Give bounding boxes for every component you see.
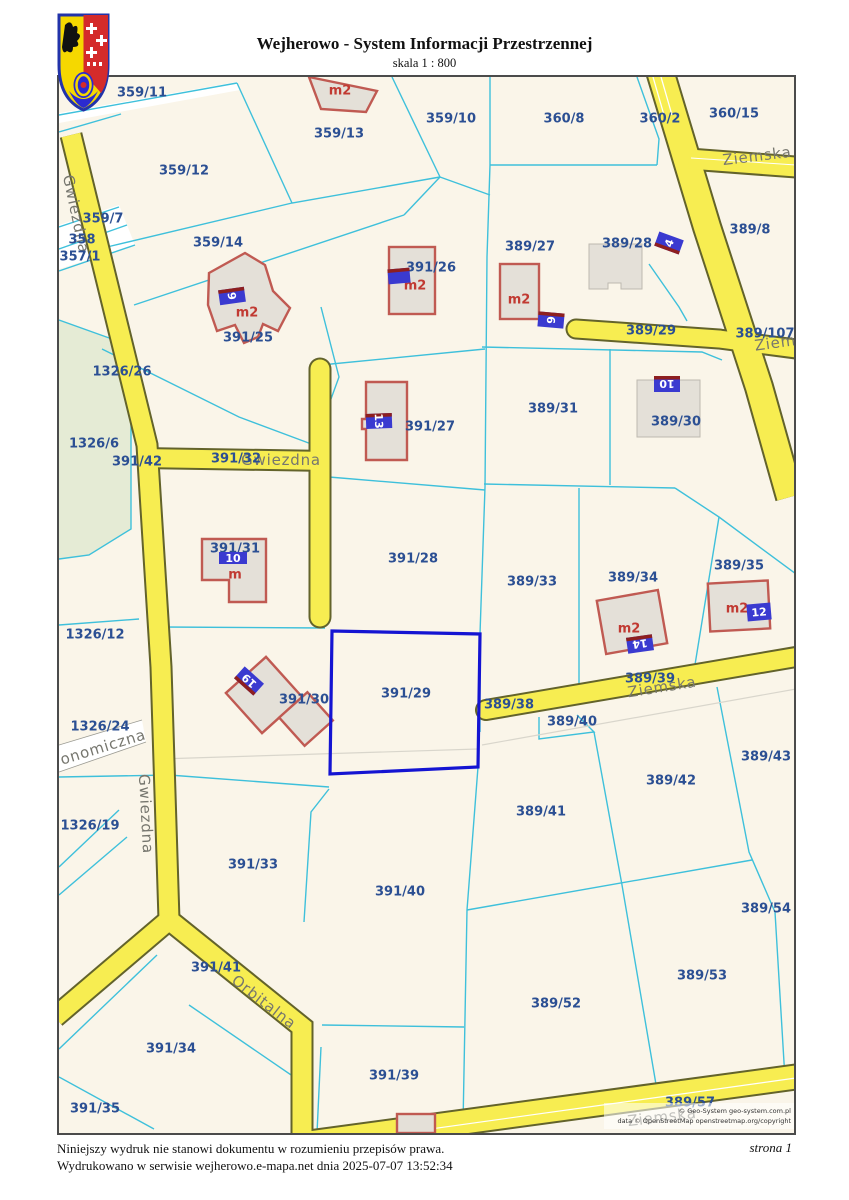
parcel-number-label: 389/27 — [505, 240, 555, 255]
parcel-number-label: 391/28 — [388, 552, 438, 567]
address-number-plate: 10 — [654, 376, 680, 392]
svg-text:12: 12 — [751, 605, 767, 619]
parcel-number-label: 1326/6 — [69, 437, 119, 452]
building-389-27 — [500, 264, 539, 319]
address-number-plate: 13 — [366, 413, 393, 429]
building-use-label: m2 — [508, 293, 531, 308]
parcel-number-label: 359/14 — [193, 236, 243, 251]
parcel-number-label: 1326/19 — [60, 819, 119, 834]
parcel-number-label: 359/10 — [426, 112, 476, 127]
parcel-number-label: 391/33 — [228, 858, 278, 873]
page-title: Wejherowo - System Informacji Przestrzen… — [0, 34, 849, 54]
parcel-number-label: 360/2 — [640, 112, 681, 127]
parcel-number-label: 360/8 — [544, 112, 585, 127]
parcel-number-label: 1326/12 — [65, 628, 124, 643]
parcel-number-label: 391/26 — [406, 261, 456, 276]
map-labels: ZiemskaZiemskaGwiezdnaGwiezdnaGwiezdnaon… — [59, 84, 794, 1131]
parcel-number-label: 389/28 — [602, 237, 652, 252]
parcel-number-label: 391/40 — [375, 885, 425, 900]
footer-printed-info: Wydrukowano w serwisie wejherowo.e-mapa.… — [57, 1157, 792, 1174]
street-name-label: Gwiezdna — [135, 774, 157, 855]
parcel-number-label: 391/29 — [381, 687, 431, 702]
copyright-line-1: © Geo-System geo-system.com.pl — [679, 1107, 792, 1115]
page-footer: Niniejszy wydruk nie stanowi dokumentu w… — [57, 1140, 792, 1174]
parcel-number-label: 389/43 — [741, 750, 791, 765]
address-number-plate: 4 — [654, 232, 684, 255]
parcel-number-label: 391/27 — [405, 420, 455, 435]
building-use-label: m2 — [618, 622, 641, 637]
parcel-number-label: 389/39 — [625, 672, 675, 687]
svg-text:10: 10 — [659, 377, 675, 390]
building-use-label: m2 — [329, 84, 352, 99]
parcel-number-label: 389/31 — [528, 402, 578, 417]
parcel-number-label: 359/11 — [117, 86, 167, 101]
svg-text:6: 6 — [544, 316, 558, 325]
parcel-number-label: 391/30 — [279, 693, 329, 708]
parcel-number-label: 389/34 — [608, 571, 658, 586]
parcel-number-label: 391/35 — [70, 1102, 120, 1117]
parcel-number-label: 389/38 — [484, 698, 534, 713]
parcel-number-label: 391/34 — [146, 1042, 196, 1057]
parcel-number-label: 389/40 — [547, 715, 597, 730]
footer-disclaimer: Niniejszy wydruk nie stanowi dokumentu w… — [57, 1140, 792, 1157]
parcel-number-label: 389/54 — [741, 902, 791, 917]
parcel-number-label: 389/53 — [677, 969, 727, 984]
address-number-plate: 12 — [746, 602, 771, 621]
map-scale: skala 1 : 800 — [0, 56, 849, 71]
parcel-number-label: 389/33 — [507, 575, 557, 590]
svg-text:10: 10 — [225, 552, 241, 565]
parcel-number-label: 389/35 — [714, 559, 764, 574]
parcel-number-label: 389/41 — [516, 805, 566, 820]
address-number-plate — [387, 268, 410, 285]
svg-text:14: 14 — [631, 636, 648, 651]
parcel-number-label: 391/25 — [223, 331, 273, 346]
parcel-number-label: 357/1 — [60, 250, 101, 265]
page-number: strona 1 — [750, 1140, 793, 1156]
parcel-number-label: 360/15 — [709, 107, 759, 122]
parcel-number-label: 389/107 — [735, 327, 794, 342]
address-number-plate: 10 — [219, 552, 247, 565]
parcel-number-label: 359/13 — [314, 127, 364, 142]
parcel-number-label: 389/52 — [531, 997, 581, 1012]
copyright-line-2: data © OpenStreetMap openstreetmap.org/c… — [617, 1117, 791, 1125]
parcel-number-label: 391/32 — [211, 452, 261, 467]
building-391-39 — [397, 1114, 435, 1133]
parcel-number-label: 358 — [68, 233, 95, 248]
parcel-number-label: 1326/24 — [70, 720, 129, 735]
parcel-number-label: 389/29 — [626, 324, 676, 339]
copyright-text: © Geo-System geo-system.com.pl data © Op… — [604, 1103, 794, 1129]
building-use-label: m — [228, 568, 242, 583]
svg-text:13: 13 — [372, 413, 386, 429]
parcel-number-label: 359/7 — [83, 212, 124, 227]
parcel-number-label: 389/42 — [646, 774, 696, 789]
parcel-number-label: 391/39 — [369, 1069, 419, 1084]
parcel-number-label: 1326/26 — [92, 365, 151, 380]
wejherowo-coat-of-arms-icon — [57, 13, 110, 112]
map-viewport: ZiemskaZiemskaGwiezdnaGwiezdnaGwiezdnaon… — [57, 75, 796, 1135]
parcel-number-label: 391/42 — [112, 455, 162, 470]
page-header: Wejherowo - System Informacji Przestrzen… — [0, 0, 849, 75]
building-use-label: m2 — [236, 306, 259, 321]
address-number-plate: 6 — [537, 311, 564, 328]
building-use-label: m2 — [726, 602, 749, 617]
parcel-number-label: 359/12 — [159, 164, 209, 179]
parcel-number-label: 389/8 — [730, 223, 771, 238]
map-canvas: ZiemskaZiemskaGwiezdnaGwiezdnaGwiezdnaon… — [59, 77, 794, 1133]
parcel-number-label: 389/30 — [651, 415, 701, 430]
parcel-number-label: 391/41 — [191, 961, 241, 976]
